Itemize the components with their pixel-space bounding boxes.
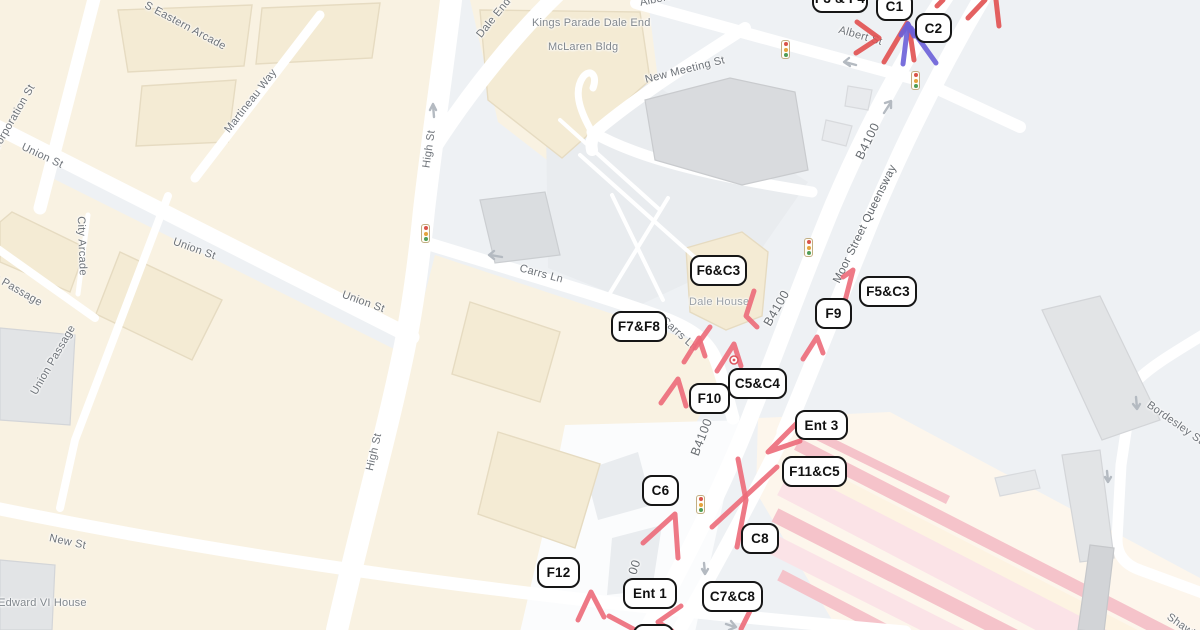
- pink-route-arrow: [658, 606, 681, 630]
- pink-route-arrow: [609, 616, 637, 630]
- pink-route-arrow: [803, 337, 823, 359]
- red-route-arrow: [937, 0, 943, 6]
- stop-marker-dot: [733, 359, 736, 362]
- route-arrows-layer: [0, 0, 1200, 630]
- map-canvas: Corporation StUnion StUnion StUnion StCi…: [0, 0, 1200, 630]
- pink-route-arrow: [746, 291, 757, 327]
- red-route-arrow: [856, 22, 879, 53]
- pink-route-arrow: [741, 607, 752, 629]
- pink-route-arrow: [643, 514, 678, 558]
- pink-route-arrow: [843, 270, 853, 301]
- red-route-arrow: [968, 0, 985, 18]
- pink-route-arrow: [578, 592, 604, 620]
- pink-route-arrow: [661, 379, 686, 406]
- pink-route-arrow: [768, 414, 806, 452]
- red-route-arrow: [996, 0, 999, 26]
